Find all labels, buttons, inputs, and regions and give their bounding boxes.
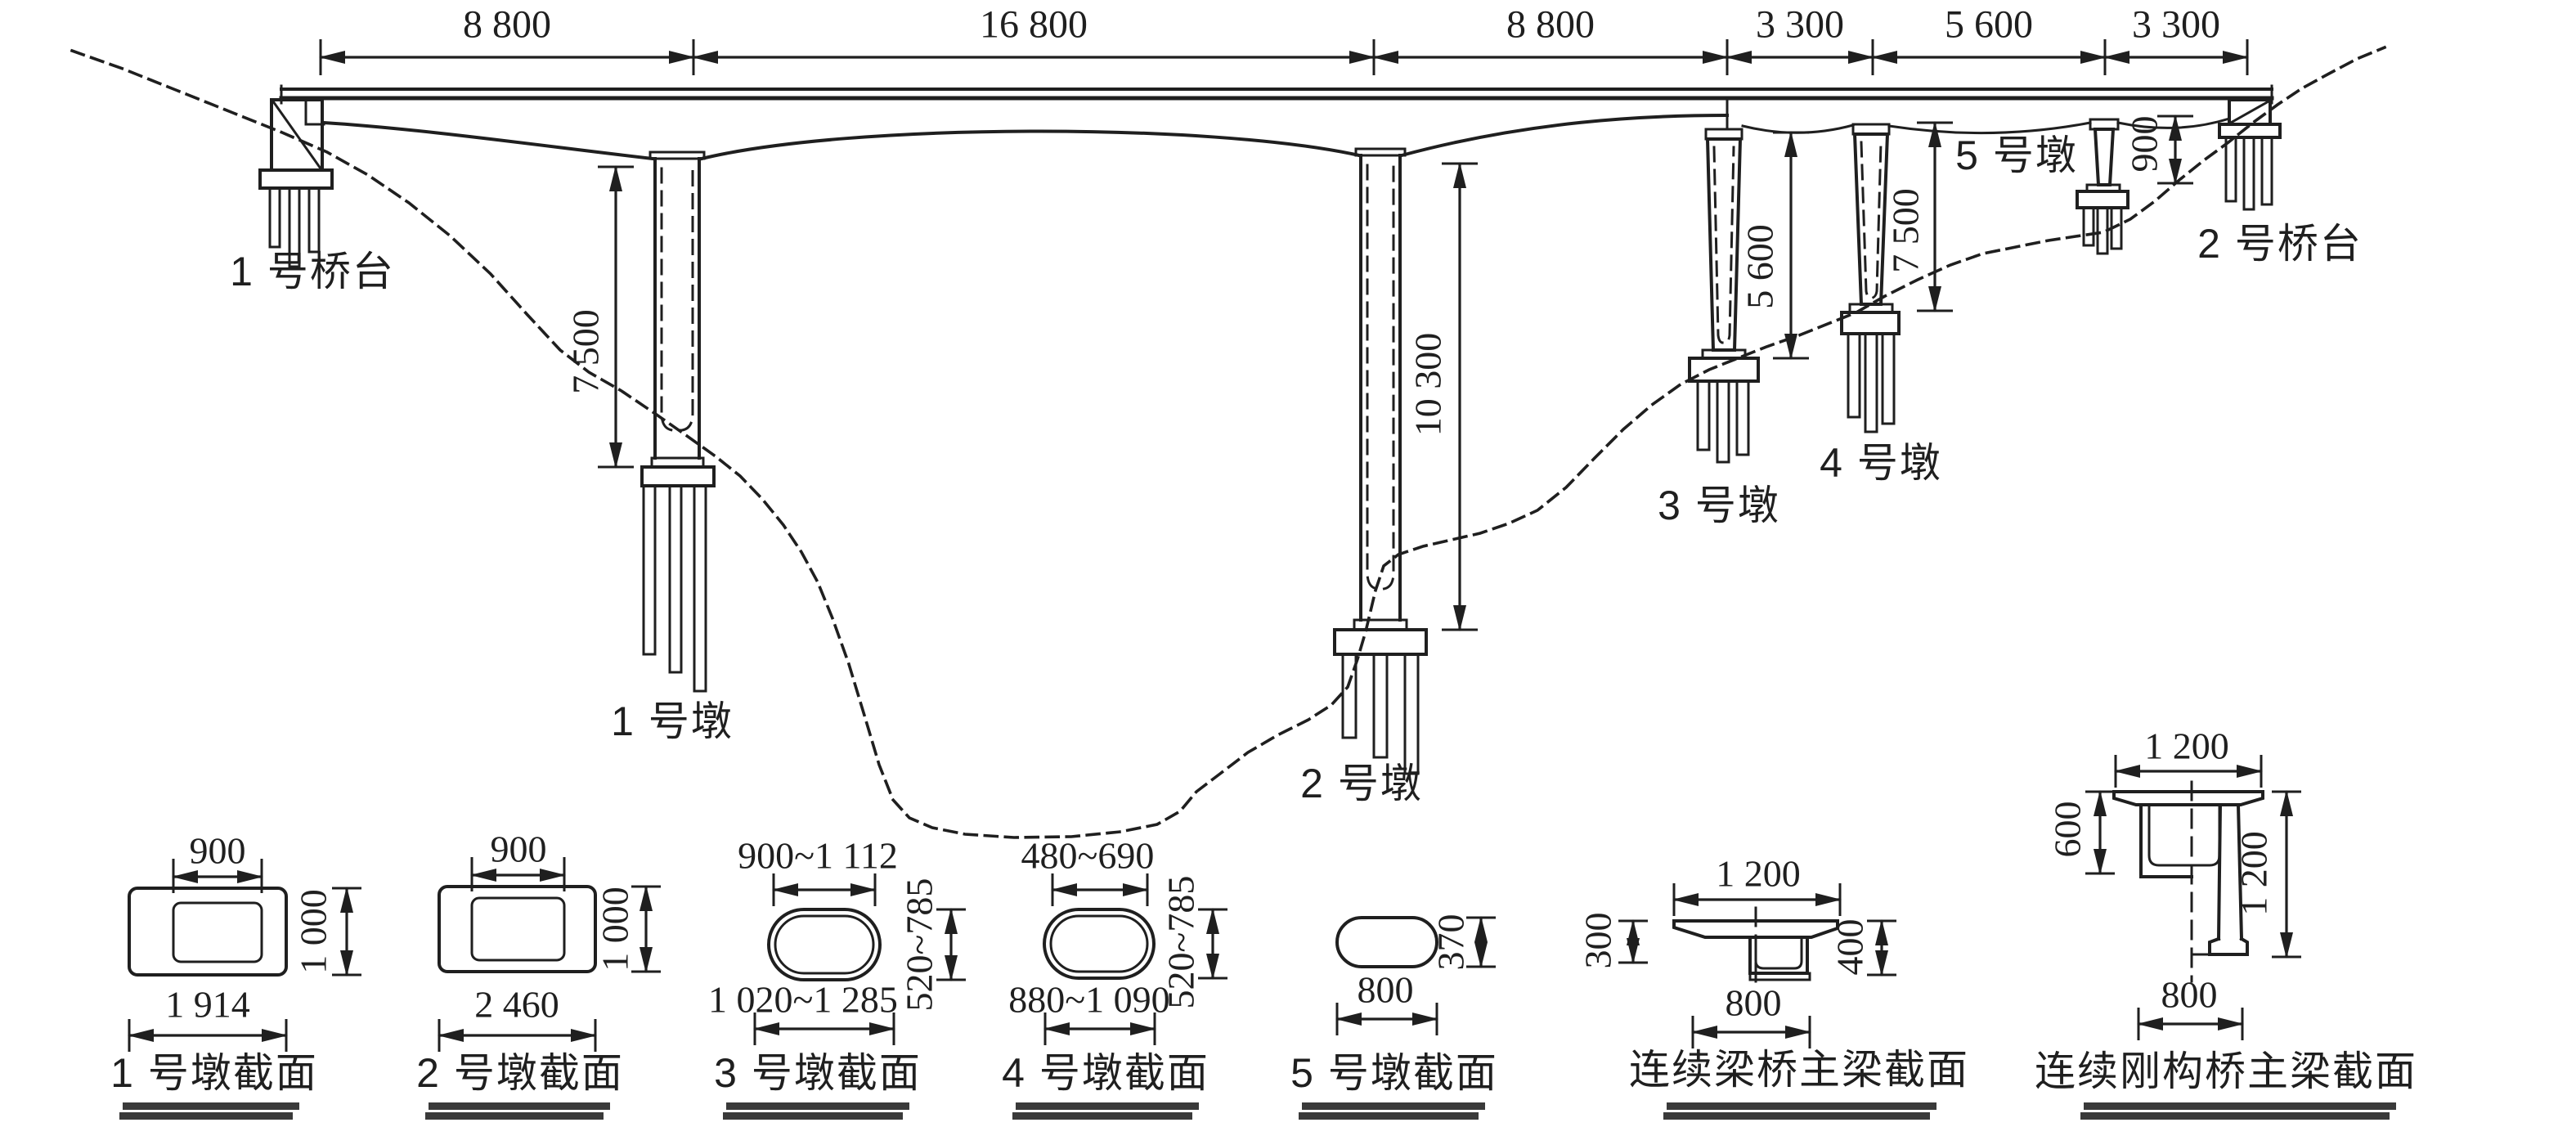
section1-bottom-dim: 1 914 — [165, 984, 250, 1026]
section7-bottom-dim: 800 — [2161, 974, 2218, 1016]
section-continuous-beam-girder: 1 200 300 400 800 连续梁桥主梁截面 — [1577, 853, 1970, 1120]
section4-bottom-dim: 880~1 090 — [1008, 979, 1169, 1021]
section3-label: 3 号墩截面 — [714, 1050, 922, 1096]
section7-label: 连续刚构桥主梁截面 — [2035, 1048, 2417, 1094]
pier1-height-value: 7 500 — [565, 309, 607, 394]
span-dim-1: 8 800 — [463, 3, 551, 47]
abutment1-label: 1 号桥台 — [230, 249, 395, 294]
section2-top-dim: 900 — [491, 828, 547, 870]
section-pier3: 900~1 112 520~785 1 020~1 285 3 号墩截面 — [708, 835, 966, 1120]
section4-label: 4 号墩截面 — [1002, 1050, 1209, 1096]
abutment2-side-value: 900 — [2124, 116, 2165, 173]
pier1-height-dim: 7 500 — [565, 167, 635, 467]
element-labels: 1 号桥台 1 号墩 2 号墩 3 号墩 4 号墩 5 号墩 2 号桥台 — [230, 132, 2363, 806]
section1-side-dim: 1 000 — [293, 889, 334, 974]
span-dim-2: 16 800 — [980, 3, 1088, 47]
approach-soffit-span5 — [1889, 123, 2090, 133]
section7-left-dim: 600 — [2047, 801, 2089, 858]
section4-top-dim: 480~690 — [1021, 835, 1155, 877]
section6-label: 连续梁桥主梁截面 — [1629, 1047, 1969, 1093]
abutment-2 — [2219, 100, 2280, 209]
section2-bottom-dim: 2 460 — [474, 984, 559, 1026]
section7-cavity — [2149, 805, 2219, 865]
section2-side-dim: 1 000 — [595, 887, 636, 972]
pier-1 — [642, 152, 714, 691]
section3-top-dim: 900~1 112 — [738, 835, 898, 877]
bridge-elevation-drawing: 8 800 16 800 8 800 3 300 5 600 3 300 — [0, 0, 2576, 1127]
section3-bottom-dim: 1 020~1 285 — [708, 979, 898, 1021]
pier-4 — [1842, 124, 1899, 432]
span-dim-4: 3 300 — [1756, 3, 1844, 47]
main-girder-soffit-span1 — [324, 123, 653, 159]
section5-bottom-dim: 800 — [1358, 969, 1414, 1011]
main-girder-soffit-span2 — [702, 131, 1359, 159]
abutment2-label: 2 号桥台 — [2197, 221, 2363, 267]
section7-top-slab — [2114, 792, 2263, 805]
section6-left-dim: 300 — [1577, 913, 1619, 969]
span-dim-6: 3 300 — [2132, 3, 2220, 47]
section1-top-dim: 900 — [190, 830, 246, 872]
pier4-label: 4 号墩 — [1820, 440, 1942, 486]
section6-foot — [1750, 973, 1810, 980]
section-pier2: 900 1 000 2 460 2 号墩截面 — [416, 828, 661, 1120]
abutment-1 — [260, 100, 332, 267]
section7-bottom-block — [2210, 939, 2247, 954]
drawing-canvas: 8 800 16 800 8 800 3 300 5 600 3 300 — [0, 0, 2576, 1127]
section-pier4: 480~690 520~785 880~1 090 4 号墩截面 — [1002, 835, 1227, 1120]
section6-bottom-dim: 800 — [1726, 982, 1782, 1024]
pier4-height-dim: 7 500 — [1885, 123, 1954, 311]
pier2-height-value: 10 300 — [1407, 333, 1449, 437]
section6-web-inner — [1756, 937, 1802, 968]
section1-label: 1 号墩截面 — [110, 1050, 318, 1096]
section5-side-dim: 370 — [1430, 914, 1472, 971]
section-pier5: 370 800 5 号墩截面 — [1290, 914, 1498, 1120]
section6-right-dim: 400 — [1829, 919, 1871, 976]
span-dimension-chain: 8 800 16 800 8 800 3 300 5 600 3 300 — [321, 3, 2247, 76]
pier3-height-value: 5 600 — [1739, 224, 1781, 309]
pier-2 — [1335, 149, 1426, 774]
pier5-label: 5 号墩 — [1955, 132, 2078, 178]
pier2-label: 2 号墩 — [1300, 761, 1423, 806]
span-dim-3: 8 800 — [1506, 3, 1595, 47]
section7-right-dim: 1 200 — [2233, 831, 2275, 916]
pier4-height-value: 7 500 — [1885, 188, 1927, 273]
abutment2-side-dim: 900 — [2124, 116, 2194, 184]
pier1-label: 1 号墩 — [611, 698, 734, 744]
section7-right-web-inner — [2219, 805, 2220, 939]
pier3-height-dim: 5 600 — [1739, 132, 1810, 358]
pier-5 — [2077, 119, 2128, 254]
section7-top-dim: 1 200 — [2144, 725, 2229, 767]
pier3-label: 3 号墩 — [1658, 483, 1780, 528]
pier2-height-dim: 10 300 — [1407, 164, 1479, 630]
section-rigid-frame-girder: 1 200 600 1 200 800 连续刚构桥主梁截面 — [2035, 725, 2417, 1120]
section5-label: 5 号墩截面 — [1290, 1050, 1498, 1096]
main-girder-soffit-span3 — [1402, 115, 1727, 155]
section6-top-dim: 1 200 — [1716, 853, 1801, 895]
section-pier1: 900 1 000 1 914 1 号墩截面 — [110, 830, 361, 1120]
section3-side-dim: 520~785 — [899, 878, 940, 1012]
span-dim-5: 5 600 — [1945, 3, 2033, 47]
section2-label: 2 号墩截面 — [416, 1050, 624, 1096]
